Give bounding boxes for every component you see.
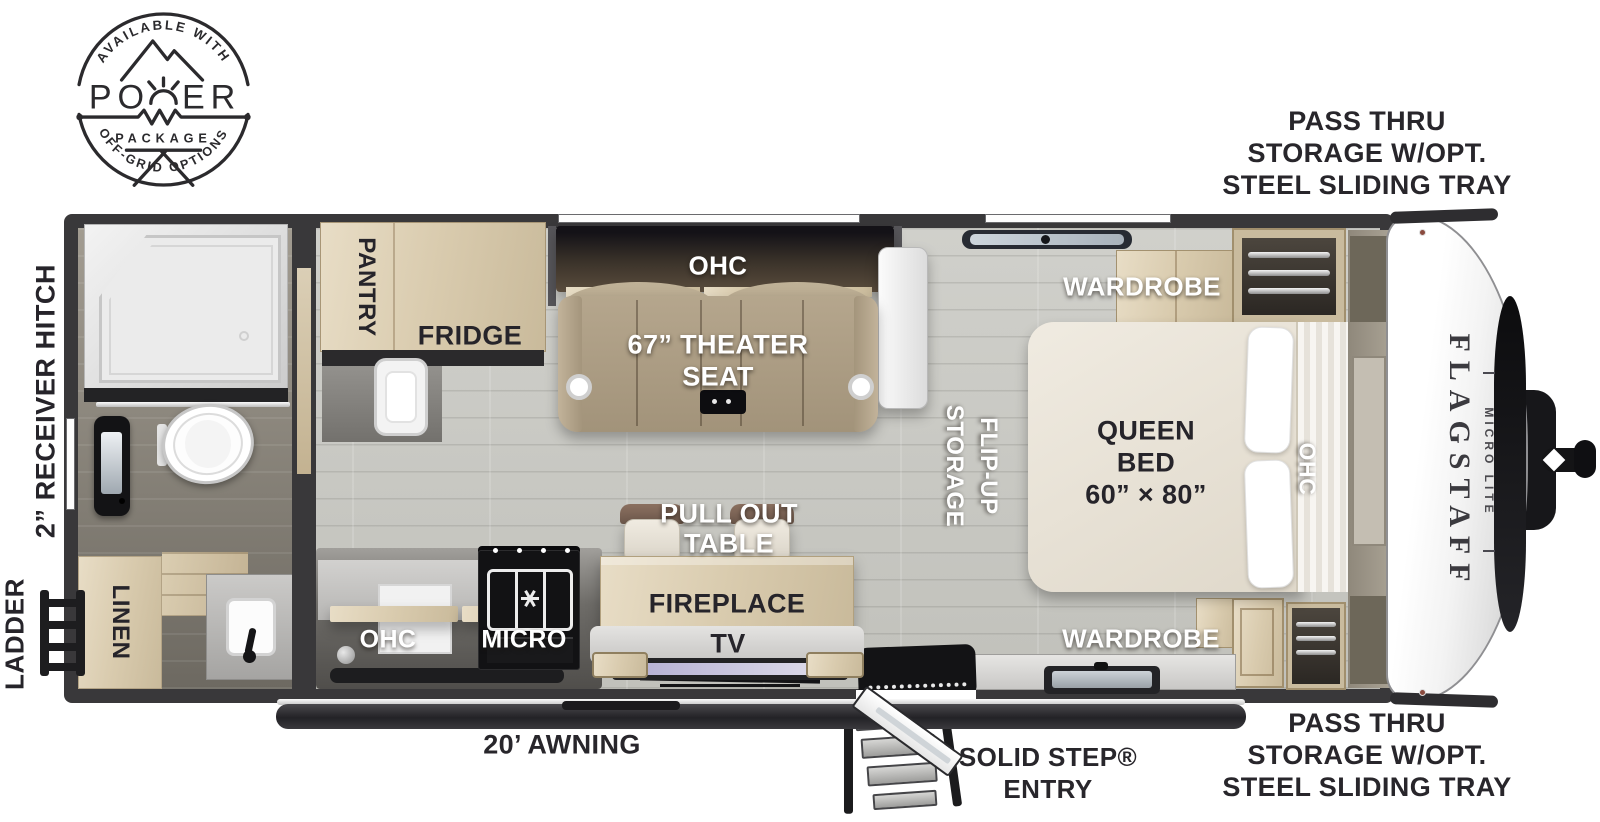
side-table: [806, 652, 864, 678]
badge-power-right: ER: [182, 78, 241, 116]
theater-label-line2: SEAT: [682, 362, 754, 393]
fireplace-label: FIREPLACE: [649, 589, 806, 620]
skylight: [962, 230, 1132, 249]
cupholder: [848, 374, 874, 400]
griddle-dots: [868, 682, 966, 689]
pass-thru-top-line3: STEEL SLIDING TRAY: [1222, 169, 1511, 201]
pillow: [1244, 459, 1294, 589]
badge-arc-top-text: AVAILABLE WITH: [93, 17, 234, 65]
floorplan-page: { "badge": { "arc_top": "AVAILABLE WITH"…: [0, 0, 1600, 822]
callout-solid-step: SOLID STEP® ENTRY: [959, 741, 1137, 805]
cap-trim-bottom: [1390, 692, 1498, 708]
ladder-rung: [40, 621, 85, 629]
tv-screen: [638, 663, 822, 675]
jack-handle-icon: [1574, 440, 1596, 478]
overhead-cabinet-rail: [330, 606, 458, 622]
cabinet-knob: [119, 498, 125, 504]
brand-rule: [1483, 372, 1495, 374]
pillow: [1244, 326, 1294, 454]
hanger-rod: [1296, 636, 1336, 641]
wardrobe-cavity: [1292, 608, 1340, 684]
medicine-cabinet: [94, 416, 130, 516]
usb-console: [700, 390, 746, 414]
storage-bin: [1350, 236, 1388, 322]
bathroom-shelf: [84, 388, 288, 402]
armrest-left: [558, 296, 582, 432]
brand-rule: [1483, 550, 1495, 552]
theater-label-line1: 67” THEATER: [628, 330, 809, 361]
queen-bed-label-line2: BED: [1117, 448, 1175, 479]
power-package-badge: AVAILABLE WITH PO ER PACKAGE OFF-GRID OP…: [66, 2, 261, 197]
zigzag-dot-left: [76, 114, 83, 121]
console-dot: [712, 399, 717, 404]
pass-thru-bottom-line2: STORAGE W/OPT.: [1222, 739, 1511, 771]
stove-grate-bar: [543, 571, 546, 629]
faucet-knob: [337, 646, 355, 664]
pass-thru-bottom-line1: PASS THRU: [1222, 707, 1511, 739]
badge-arc-top-textpath: AVAILABLE WITH: [93, 17, 234, 65]
stove-knob: [517, 548, 522, 553]
wardrobe-bottom-cabinet: [1232, 598, 1284, 688]
callout-awning: 20’ AWNING: [483, 730, 641, 761]
awning-bracket: [562, 701, 680, 710]
galley-sink: [374, 358, 428, 436]
ohc-kitchen-label: OHC: [360, 626, 417, 655]
wardrobe-top-label: WARDROBE: [1063, 272, 1221, 303]
ladder-rung: [40, 643, 85, 651]
hanger-rod: [1296, 622, 1336, 627]
armrest-right: [854, 296, 878, 432]
queen-bed-label-line3: 60” × 80”: [1085, 480, 1206, 511]
bathroom-door: [297, 268, 311, 474]
cabinet-door-panel: [1240, 608, 1274, 676]
ohc-bed-label: OHC: [1294, 443, 1321, 496]
step-tread: [867, 762, 938, 787]
hanger-rod: [1248, 252, 1330, 258]
badge-package-text: PACKAGE: [115, 131, 211, 145]
queen-bed-label-line1: QUEEN: [1097, 416, 1195, 447]
cap-trim-top: [1390, 208, 1498, 224]
front-storage: [1348, 230, 1390, 688]
wardrobe-bottom-open: [1286, 602, 1346, 690]
flip-up-label-line1: FLIP-UP: [974, 417, 1002, 515]
pantry-label: PANTRY: [352, 237, 380, 337]
sun-icon: [151, 91, 176, 104]
skylight-crank: [1041, 235, 1050, 244]
flip-up-label-line2: STORAGE: [940, 405, 968, 527]
wardrobe-cavity: [1242, 238, 1336, 315]
marker-light: [1419, 689, 1426, 696]
step-tread: [872, 790, 937, 810]
ladder-rung: [40, 599, 85, 607]
wardrobe-top-open: [1232, 228, 1346, 325]
brand-micro-lite: MICRO LITE: [1482, 407, 1496, 516]
seat-seam: [802, 300, 804, 426]
callout-pass-thru-top: PASS THRU STORAGE W/OPT. STEEL SLIDING T…: [1222, 105, 1511, 201]
window-top-bedroom: [985, 214, 1171, 223]
callout-ladder: LADDER: [0, 578, 31, 690]
ohc-living-label: OHC: [689, 251, 748, 282]
callout-pass-thru-bottom: PASS THRU STORAGE W/OPT. STEEL SLIDING T…: [1222, 707, 1511, 803]
ladder-rung: [40, 663, 85, 671]
marker-light: [1419, 229, 1426, 236]
counter-window: [1044, 666, 1160, 694]
solid-step-line1: SOLID STEP®: [959, 741, 1137, 773]
galley-sink-basin: [385, 371, 417, 423]
tv-label: TV: [710, 629, 745, 660]
cabinet-seam: [393, 223, 395, 351]
awning-bar: [276, 704, 1246, 729]
window-rear-wall: [66, 418, 75, 510]
stove-knob: [493, 548, 498, 553]
hanger-rod: [1248, 288, 1330, 294]
zigzag-dot-right: [244, 114, 251, 121]
flip-up-storage-panel: [878, 247, 928, 409]
medicine-cabinet-mirror: [101, 432, 122, 494]
linen-label: LINEN: [106, 585, 134, 660]
storage-bin: [1350, 596, 1388, 684]
mountain-icon: [122, 41, 203, 80]
shower: [84, 224, 288, 390]
console-dot: [726, 399, 731, 404]
side-table: [592, 652, 648, 678]
micro-label: MICRO: [481, 626, 566, 655]
stove-grate-bar: [515, 571, 518, 629]
counter-edge: [322, 350, 544, 366]
tv-stand-leg: [660, 684, 800, 687]
fridge-label: FRIDGE: [418, 321, 522, 352]
pass-thru-top-line1: PASS THRU: [1222, 105, 1511, 137]
counter-window-glass: [1052, 671, 1152, 688]
hanger-rod: [1296, 650, 1336, 655]
slide-wall: [548, 226, 556, 306]
window-latch: [1094, 662, 1108, 670]
stove-knob: [541, 548, 546, 553]
pull-out-table-label-line1: PULL OUT: [660, 499, 798, 530]
badge-power-left: PO: [89, 78, 150, 116]
stove-knob: [565, 548, 570, 553]
window-top-living: [558, 214, 860, 223]
kitchen-sink-strip: [330, 668, 564, 683]
wardrobe-bottom-label: WARDROBE: [1062, 624, 1220, 655]
seat-seam: [636, 300, 638, 426]
shower-drain: [239, 331, 249, 341]
pass-thru-bottom-line3: STEEL SLIDING TRAY: [1222, 771, 1511, 803]
storage-tray: [1352, 356, 1386, 546]
front-cap-window: [1494, 296, 1526, 632]
callout-receiver-hitch: 2” RECEIVER HITCH: [31, 264, 62, 538]
hanger-rod: [1248, 270, 1330, 276]
sun-rays-icon: [149, 78, 178, 89]
pass-thru-top-line2: STORAGE W/OPT.: [1222, 137, 1511, 169]
solid-step-line2: ENTRY: [959, 773, 1137, 805]
cupholder: [566, 374, 592, 400]
pull-out-table-label-line2: TABLE: [684, 529, 774, 560]
brand-flagstaff: FLAGSTAFF: [1442, 333, 1476, 590]
